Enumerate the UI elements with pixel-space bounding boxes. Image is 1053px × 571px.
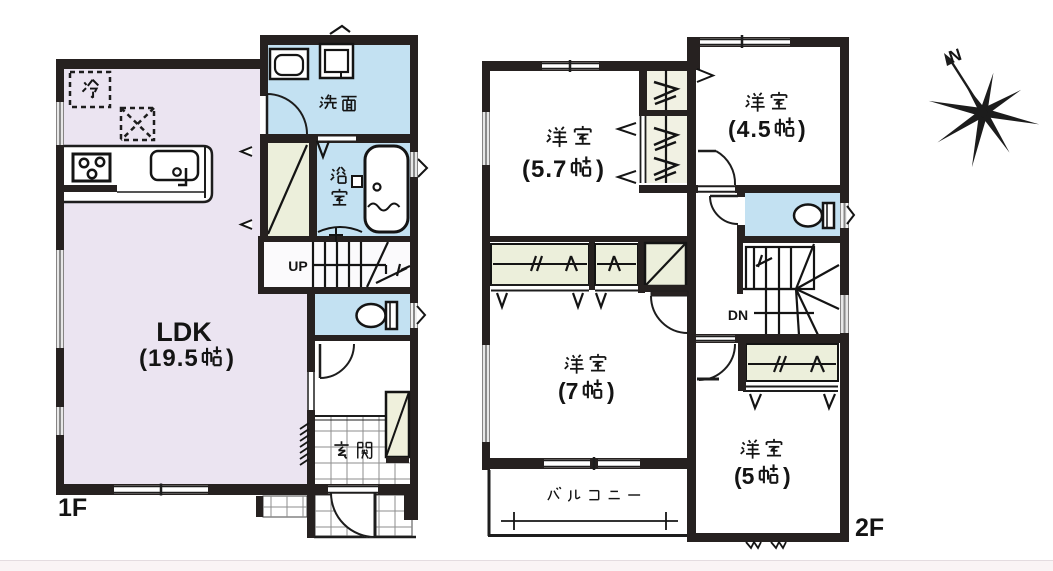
svg-text:1F: 1F [58, 494, 87, 522]
svg-text:UP: UP [288, 258, 307, 274]
svg-text:): ) [596, 156, 604, 183]
svg-text:DN: DN [728, 307, 748, 323]
svg-text:2F: 2F [855, 514, 884, 542]
svg-text:(7: (7 [558, 378, 578, 404]
svg-text:(5: (5 [734, 463, 755, 489]
svg-text:(5.7: (5.7 [522, 156, 567, 183]
svg-text:LDK: LDK [156, 317, 212, 347]
svg-text:): ) [798, 116, 806, 142]
svg-text:): ) [783, 463, 791, 489]
svg-text:): ) [607, 378, 615, 404]
svg-text:): ) [226, 345, 234, 372]
svg-text:(19.5: (19.5 [139, 345, 199, 372]
svg-text:(4.5: (4.5 [728, 116, 772, 142]
